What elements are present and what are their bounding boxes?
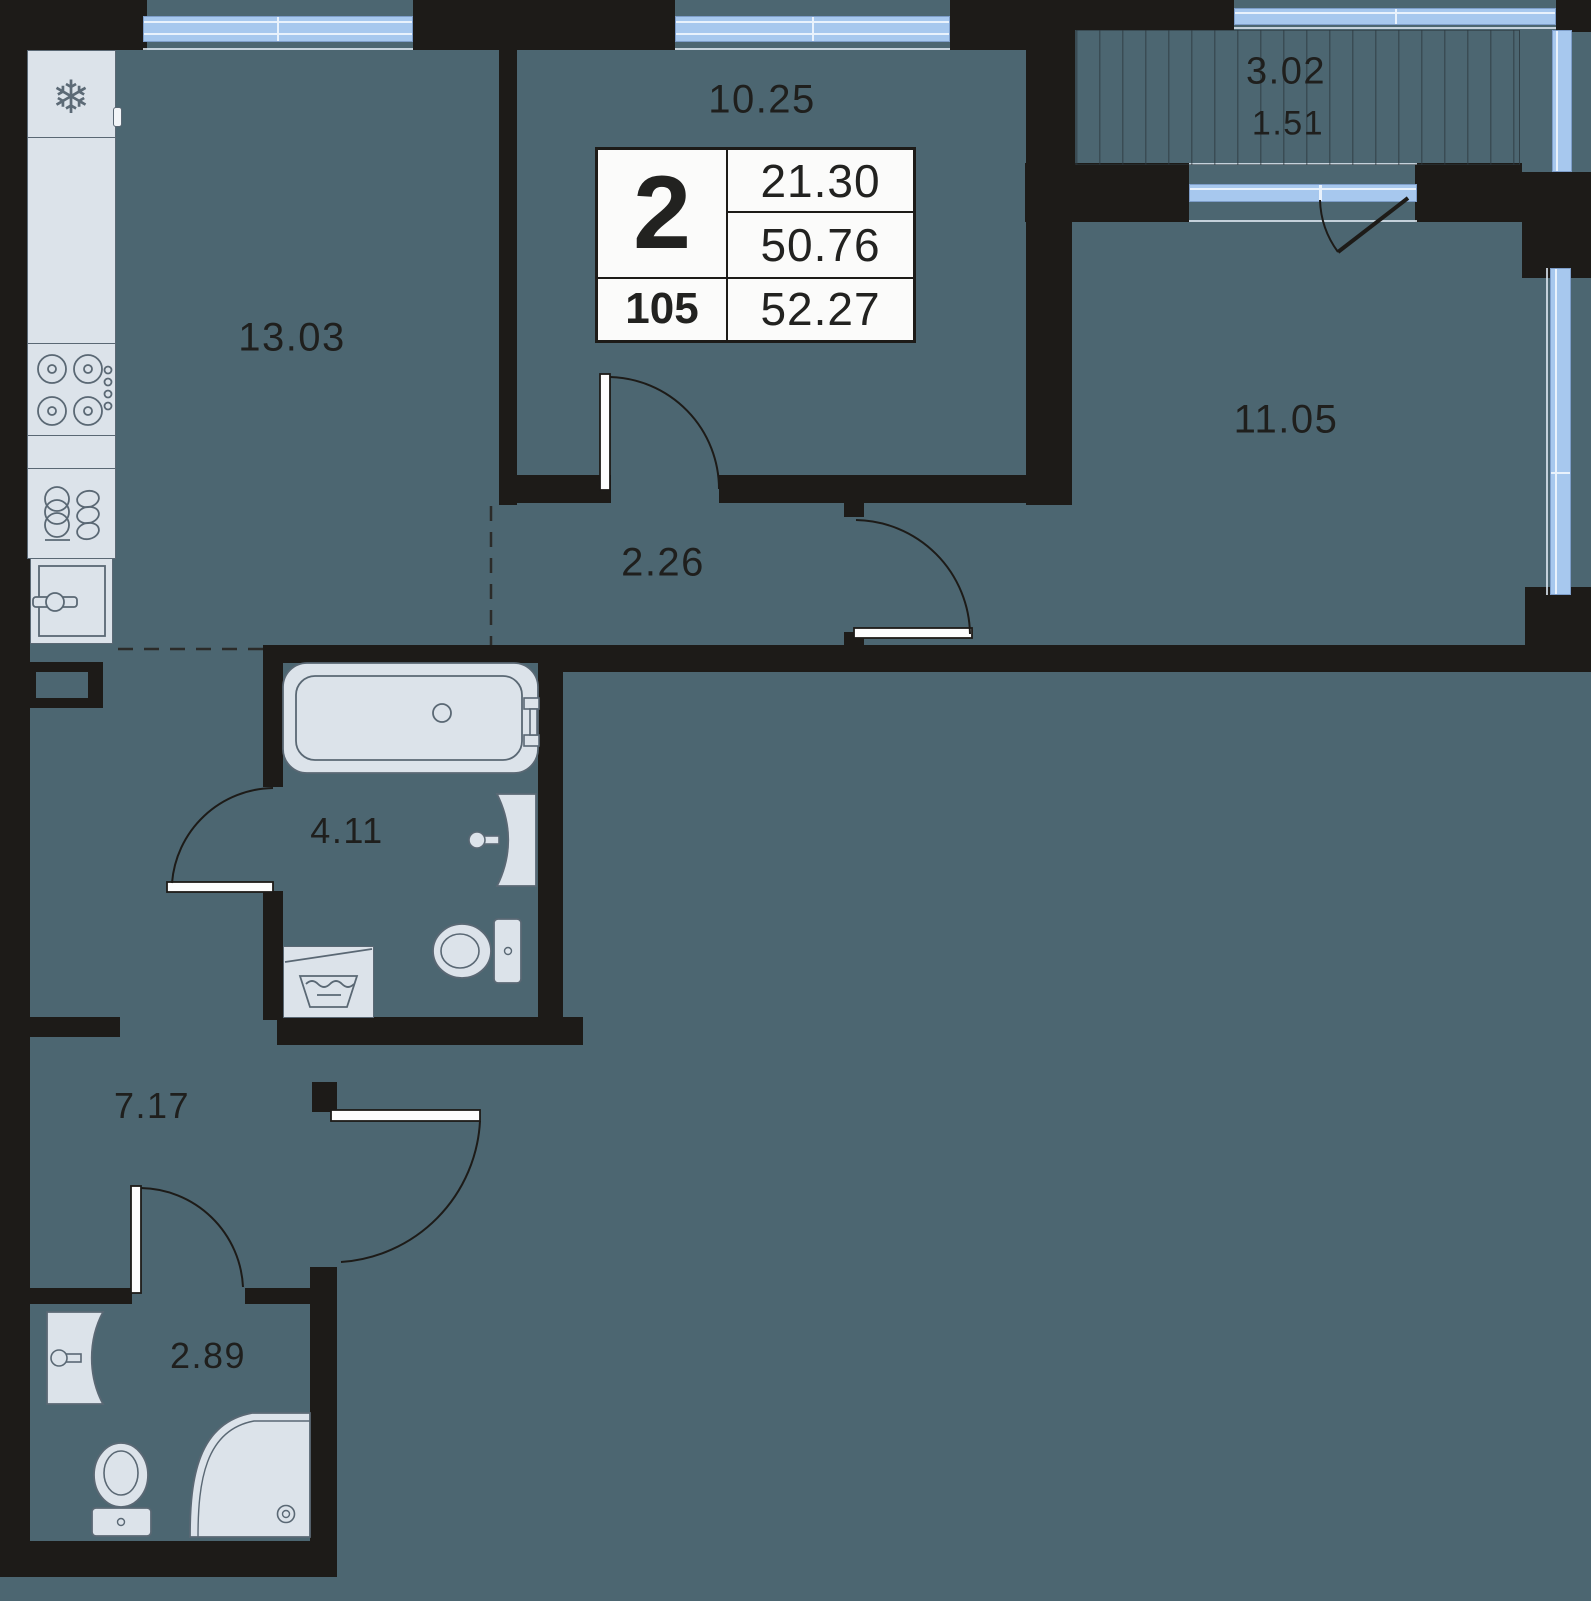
- wall: [413, 0, 675, 50]
- door-wc: [131, 1186, 243, 1293]
- bathroom-sink: [469, 794, 536, 886]
- door-bathroom: [167, 788, 273, 892]
- wall: [499, 475, 611, 503]
- wall: [538, 645, 1591, 672]
- room-label-room-top: 10.25: [708, 78, 816, 123]
- sill: [1234, 27, 1556, 29]
- stove: [27, 343, 116, 436]
- balcony-side-window: [1552, 30, 1572, 172]
- room-top-window: [675, 16, 950, 42]
- door-jamb: [312, 1082, 337, 1112]
- sill: [675, 48, 950, 50]
- wall: [263, 891, 283, 1020]
- area-without-balcony-value: 50.76: [728, 213, 913, 276]
- wall: [245, 1288, 310, 1304]
- wall: [263, 645, 283, 787]
- balcony-top-window: [1234, 8, 1556, 25]
- door-jamb: [844, 632, 864, 646]
- door-room-top: [600, 374, 719, 490]
- wall: [277, 1017, 583, 1045]
- wc-sink: [47, 1312, 103, 1404]
- door-jamb: [844, 503, 864, 517]
- balcony-door-window: [1189, 184, 1417, 202]
- duct-opening: [36, 672, 88, 698]
- door-entrance: [331, 1110, 480, 1262]
- wall: [1556, 0, 1591, 32]
- kitchen-counter: [27, 435, 116, 469]
- wall: [20, 1017, 120, 1037]
- wall: [310, 1267, 337, 1577]
- wall: [1028, 30, 1075, 165]
- wall: [263, 645, 563, 663]
- kitchen-appliance: [30, 558, 113, 644]
- washing-machine: [283, 946, 374, 1018]
- bathtub: [283, 663, 539, 773]
- apartment-stat-card: 2 21.30 50.76 105 52.27: [595, 147, 916, 343]
- sill: [1546, 268, 1548, 595]
- floor-plan: ❄: [0, 0, 1591, 1601]
- wall: [499, 42, 517, 505]
- wall: [1028, 0, 1234, 30]
- fridge-handle: [113, 107, 122, 127]
- wall: [1522, 172, 1591, 278]
- wall: [1415, 163, 1522, 222]
- room-label-hall: 7.17: [114, 1085, 190, 1127]
- sill: [1189, 220, 1417, 222]
- room-right-window: [1550, 268, 1571, 595]
- total-area-value: 52.27: [728, 277, 913, 340]
- room-label-wc: 2.89: [170, 1335, 246, 1377]
- room-label-balcony-area: 3.02: [1246, 51, 1326, 94]
- room-label-corridor: 2.26: [621, 541, 705, 586]
- wall: [1525, 587, 1591, 672]
- shower: [190, 1413, 310, 1537]
- wall: [0, 0, 30, 1577]
- rooms-count: 2: [598, 150, 728, 277]
- door-balcony: [1320, 198, 1408, 252]
- unit-number: 105: [598, 277, 728, 340]
- wall: [25, 1541, 337, 1577]
- open-boundary-dashed-line: [118, 506, 491, 649]
- wall: [27, 1288, 132, 1304]
- wall: [538, 645, 563, 1020]
- kitchen-window: [143, 16, 413, 42]
- wall: [1025, 163, 1189, 222]
- room-label-balcony-reduced: 1.51: [1252, 105, 1324, 144]
- wc-toilet: [92, 1443, 151, 1536]
- room-label-bathroom: 4.11: [310, 810, 383, 852]
- snowflake-icon: ❄: [52, 70, 91, 124]
- room-label-kitchen: 13.03: [238, 316, 346, 361]
- door-room-right: [854, 520, 972, 638]
- kitchen-sink-cabinet: [27, 468, 116, 559]
- toilet: [433, 919, 521, 983]
- kitchen-counter: [27, 137, 116, 344]
- room-label-room-right: 11.05: [1234, 398, 1339, 443]
- sill: [143, 48, 413, 50]
- living-area-value: 21.30: [728, 150, 913, 213]
- wall: [719, 475, 1042, 503]
